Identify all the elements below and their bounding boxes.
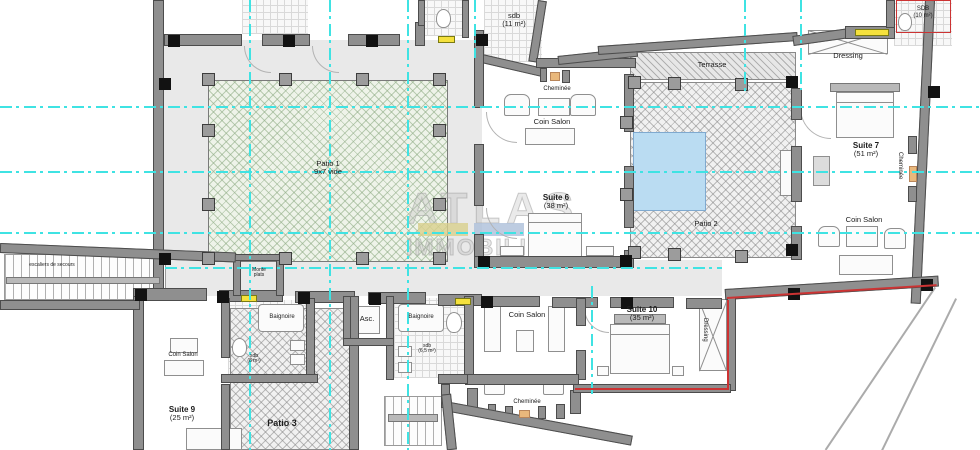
label-cheminee-top: Cheminée xyxy=(543,86,570,93)
toilet xyxy=(232,338,247,357)
gridline-h xyxy=(0,232,980,234)
sink xyxy=(290,340,305,351)
door-arc xyxy=(800,108,831,139)
label-cheminee-bottom: Cheminée xyxy=(513,399,540,406)
column xyxy=(786,76,798,88)
toilet xyxy=(436,9,451,28)
bed-line xyxy=(836,102,894,103)
label-coin-salon-bottom: Coin Salon xyxy=(509,311,546,319)
label-patio1: Patio 1 9x7 vide xyxy=(314,160,342,176)
wall xyxy=(465,374,579,385)
sofa xyxy=(548,306,565,352)
wall xyxy=(221,384,230,450)
wall xyxy=(133,296,144,450)
column xyxy=(786,244,798,256)
column xyxy=(735,250,748,263)
sdb65-area: (6,5 m²) xyxy=(418,348,436,354)
suite7-area: (51 m²) xyxy=(854,149,878,158)
coffee-table xyxy=(170,338,198,353)
gridline-h xyxy=(0,106,980,108)
column xyxy=(668,248,681,261)
wall xyxy=(0,300,140,310)
sofa xyxy=(839,255,893,275)
column xyxy=(159,78,171,90)
label-suite7: Suite 7 (51 m²) xyxy=(853,142,879,158)
suite6-area: (38 m²) xyxy=(544,201,568,210)
door-arc xyxy=(486,112,517,143)
label-sdb8: sdb (8 m²) xyxy=(247,354,260,364)
wall xyxy=(221,298,230,358)
wall xyxy=(791,88,802,120)
fireplace-top xyxy=(550,72,560,81)
sdb8-area: (8 m²) xyxy=(247,358,260,364)
label-coin-salon-right: Coin Salon xyxy=(846,216,883,224)
sofa xyxy=(164,360,204,376)
column xyxy=(620,188,633,201)
wall xyxy=(343,338,394,346)
column xyxy=(202,73,215,86)
wall xyxy=(570,390,581,414)
bed-line xyxy=(528,222,582,223)
bed-line xyxy=(610,334,670,335)
column xyxy=(433,252,446,265)
column xyxy=(279,73,292,86)
wall xyxy=(221,374,318,383)
boundary-red-line xyxy=(575,388,728,390)
wall xyxy=(474,144,484,206)
column xyxy=(202,124,215,137)
fireplace-bottom xyxy=(519,410,530,418)
column xyxy=(476,34,488,46)
label-coin-salon-top: Coin Salon xyxy=(534,118,571,126)
label-baignoire-left: Baignoire xyxy=(269,314,294,321)
column xyxy=(620,255,632,267)
gridline-h xyxy=(0,171,980,173)
window-marker xyxy=(855,29,889,36)
nightstand xyxy=(672,366,684,376)
column xyxy=(217,291,229,303)
sink xyxy=(290,354,305,365)
wall xyxy=(464,296,474,380)
label-suite6: Suite 6 (38 m²) xyxy=(543,194,569,210)
patio1-detail: 9x7 vide xyxy=(314,167,342,176)
wall xyxy=(556,404,565,419)
armchair xyxy=(570,94,596,116)
wall xyxy=(438,374,468,384)
suite9-area: (25 m²) xyxy=(170,413,194,422)
column xyxy=(135,289,147,301)
label-asc: Asc. xyxy=(360,315,375,323)
wall xyxy=(686,298,722,309)
stair-rail xyxy=(6,277,160,284)
closet xyxy=(586,246,614,256)
wall xyxy=(576,298,586,326)
wall xyxy=(306,298,315,378)
chaise xyxy=(516,330,534,352)
toilet xyxy=(446,312,462,333)
column xyxy=(279,252,292,265)
wall xyxy=(233,254,284,261)
nightstand xyxy=(597,366,609,376)
column xyxy=(356,73,369,86)
headboard xyxy=(830,83,900,92)
wall xyxy=(343,296,351,344)
wall xyxy=(886,0,895,28)
label-sdb65: sdb (6,5 m²) xyxy=(418,344,436,354)
label-monte-plats: Monte plats xyxy=(248,268,270,278)
column xyxy=(356,252,369,265)
sofa xyxy=(484,306,501,352)
window-marker xyxy=(455,298,471,305)
gridline-v xyxy=(744,0,746,95)
wall xyxy=(791,146,802,202)
coffee-table xyxy=(846,226,878,247)
wall xyxy=(418,0,425,26)
column xyxy=(620,116,633,129)
bed-suite6 xyxy=(528,213,582,259)
column xyxy=(366,35,378,47)
column xyxy=(202,198,215,211)
column xyxy=(433,124,446,137)
boundary-red-line xyxy=(727,300,729,390)
closet xyxy=(500,246,524,256)
label-suite9: Suite 9 (25 m²) xyxy=(169,406,195,422)
column xyxy=(168,35,180,47)
label-terrasse: Terrasse xyxy=(698,61,727,69)
column xyxy=(928,86,940,98)
gridline-v xyxy=(249,0,251,450)
column xyxy=(433,198,446,211)
suite10-area: (35 m²) xyxy=(630,313,654,322)
bed-suite7 xyxy=(836,92,894,138)
wall xyxy=(908,186,917,202)
wall xyxy=(538,406,546,419)
column xyxy=(159,253,171,265)
gridline-v xyxy=(591,286,593,394)
column xyxy=(298,292,310,304)
stair-rail xyxy=(388,414,438,422)
door-arc xyxy=(584,308,609,333)
label-sdb11: sdb (11 m²) xyxy=(502,12,526,28)
gridline-v xyxy=(474,0,476,58)
sink xyxy=(398,346,412,357)
column xyxy=(433,73,446,86)
label-baignoire-center: Baignoire xyxy=(408,314,433,321)
label-patio3: Patio 3 xyxy=(267,419,297,427)
label-dressing-top: Dressing xyxy=(833,52,863,60)
label-patio2: Patio 2 xyxy=(694,220,717,228)
label-dressing-bottom: Dressing xyxy=(702,318,708,342)
label-escalier: escaliers de secours xyxy=(29,263,75,268)
sink xyxy=(398,362,412,373)
sdb11-area: (11 m²) xyxy=(502,19,526,28)
shower-room-topleft xyxy=(242,0,308,34)
armchair xyxy=(818,226,840,247)
column xyxy=(628,76,641,89)
wall xyxy=(540,68,547,82)
column xyxy=(283,35,295,47)
armchair xyxy=(504,94,530,116)
label-coin-salon-suite9: Coin Salon xyxy=(168,352,197,359)
wall xyxy=(562,70,570,83)
column xyxy=(202,252,215,265)
label-cheminee-right: Cheminée xyxy=(897,152,903,179)
sdb10-area: (10 m²) xyxy=(913,13,932,19)
floor-plan: ATLAS IMMOBILIER xyxy=(0,0,980,450)
wall xyxy=(462,0,469,38)
wall xyxy=(908,136,917,154)
column xyxy=(668,77,681,90)
gridline-v xyxy=(407,0,409,450)
gridline-v xyxy=(329,0,331,450)
column xyxy=(481,296,493,308)
label-sdb10: SDB (10 m²) xyxy=(913,6,932,19)
sdb10-name: SDB xyxy=(917,6,929,12)
column xyxy=(735,78,748,91)
fireplace-right xyxy=(909,166,917,182)
window-marker xyxy=(438,36,455,43)
column xyxy=(369,293,381,305)
label-suite10: Suite 10 (35 m²) xyxy=(627,306,658,322)
property-line xyxy=(881,298,957,450)
bed-suite10 xyxy=(610,324,670,374)
bed-suite9 xyxy=(186,428,242,450)
gridline-v xyxy=(800,0,802,90)
property-line xyxy=(825,287,936,450)
sofa xyxy=(525,128,575,145)
